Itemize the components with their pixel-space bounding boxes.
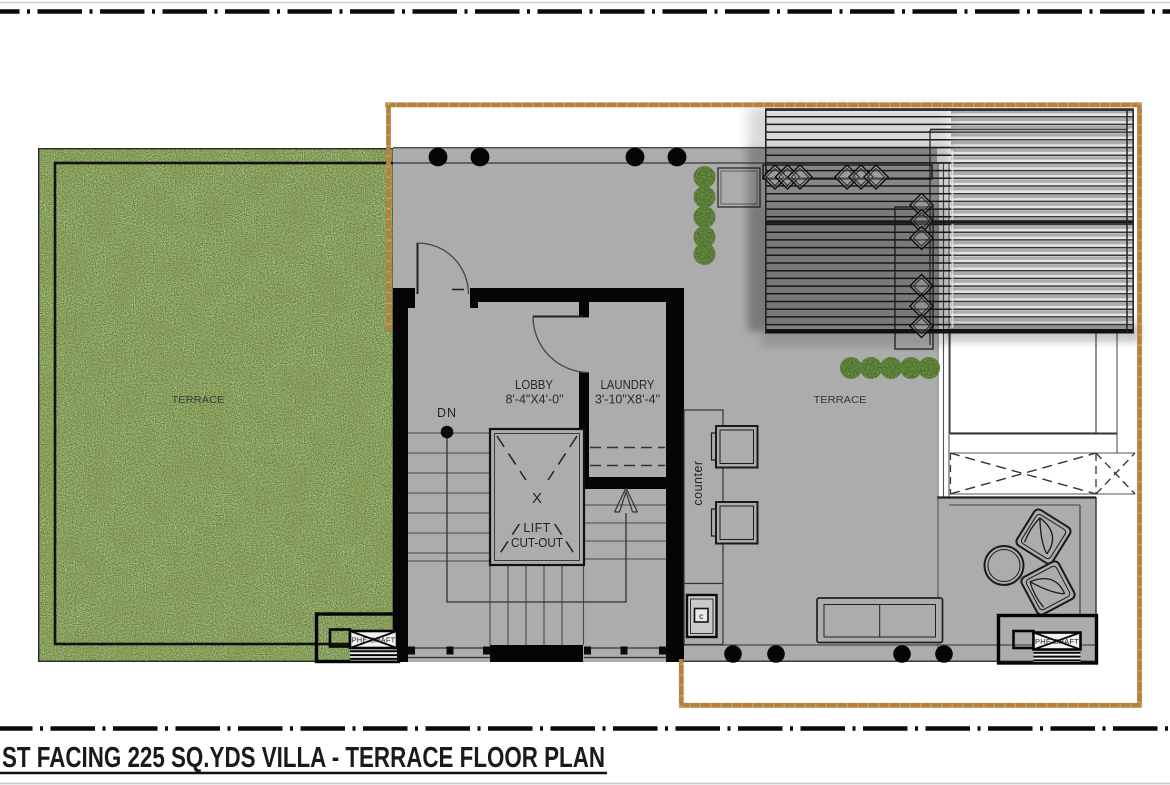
svg-text:PHE SHAFT: PHE SHAFT xyxy=(1035,637,1079,646)
svg-text:c: c xyxy=(699,611,704,621)
svg-text:DN: DN xyxy=(437,406,457,420)
svg-text:TERRACE: TERRACE xyxy=(814,394,867,406)
svg-text:ST FACING 225 SQ.YDS VILLA - T: ST FACING 225 SQ.YDS VILLA - TERRACE FLO… xyxy=(2,742,605,774)
svg-text:TERRACE: TERRACE xyxy=(172,394,225,406)
svg-text:LAUNDRY: LAUNDRY xyxy=(601,377,655,392)
svg-text:counter: counter xyxy=(691,460,705,505)
svg-text:LOBBY: LOBBY xyxy=(515,377,553,392)
svg-text:PHE SHAFT: PHE SHAFT xyxy=(352,636,396,645)
svg-text:3'-10"X8'-4": 3'-10"X8'-4" xyxy=(595,393,660,407)
svg-text:8'-4"X4'-0": 8'-4"X4'-0" xyxy=(505,393,563,407)
svg-text:X: X xyxy=(532,490,542,507)
svg-text:LIFT: LIFT xyxy=(523,521,550,535)
svg-text:CUT-OUT: CUT-OUT xyxy=(511,536,563,550)
